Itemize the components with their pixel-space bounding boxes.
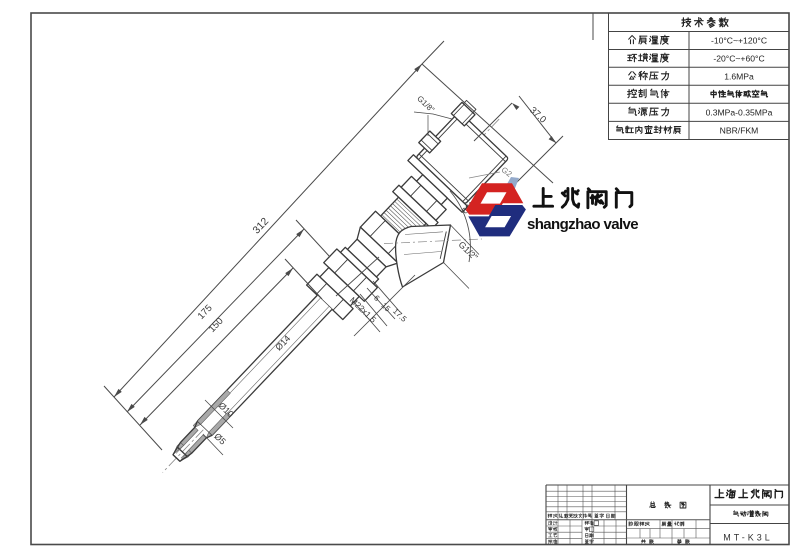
svg-text:G1/8": G1/8" [415, 94, 436, 114]
svg-text:shangzhao valve: shangzhao valve [527, 216, 638, 233]
svg-text:-10°C~+120°C: -10°C~+120°C [711, 36, 767, 46]
svg-text:312: 312 [250, 215, 271, 236]
svg-text:NBR/FKM: NBR/FKM [720, 126, 759, 136]
svg-text:MT-K3L: MT-K3L [723, 533, 773, 543]
svg-text:0.3MPa-0.35MPa: 0.3MPa-0.35MPa [706, 108, 773, 118]
svg-text:17.5: 17.5 [391, 307, 409, 325]
svg-text:1.6MPa: 1.6MPa [724, 72, 754, 82]
svg-text:-20°C~+60°C: -20°C~+60°C [713, 54, 764, 64]
svg-text:15: 15 [379, 301, 392, 314]
svg-text:G1/2": G1/2" [456, 239, 479, 262]
svg-text:150: 150 [207, 316, 226, 335]
svg-text:37.0: 37.0 [527, 105, 548, 126]
